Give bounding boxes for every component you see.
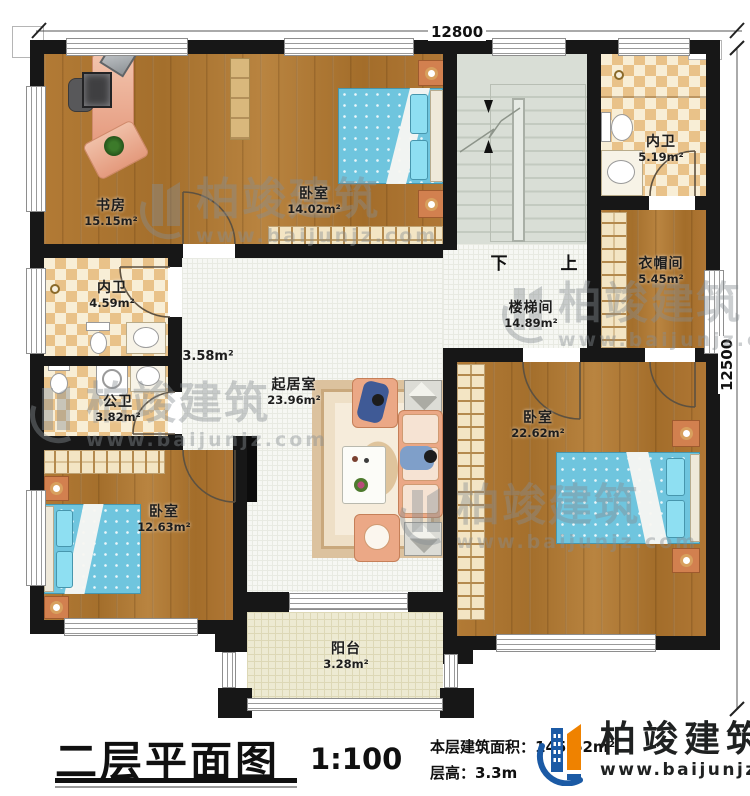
balcony-side-rail [222,652,236,688]
toilet-bowl [90,332,107,354]
brand-logo-icon [534,720,590,786]
room-label-bath-top: 内卫5.19m² [638,134,683,165]
table-decor [352,456,358,462]
balcony-pillar [440,688,474,718]
toilet-bowl [50,373,68,394]
title-underline-thin [55,786,297,788]
side-table [404,380,442,412]
tv [247,436,257,502]
window [284,38,414,56]
window [64,618,198,636]
computer-monitor [82,72,112,108]
lamp-icon [425,198,438,211]
armchair-pillow [364,524,390,550]
sofa-cushion [402,484,439,514]
wall-stub [215,634,247,652]
wall-stair-right [587,54,601,196]
wall-stair-left [443,54,457,250]
wall-balcony-stub [408,592,443,612]
coffee-table [342,446,386,504]
window [492,38,566,56]
sink-basin [133,327,159,348]
table-decor [364,458,369,463]
wall-balcony-stub [247,592,289,612]
room-label-bedroom-right: 卧室22.62m² [511,410,564,441]
person-head [372,394,384,406]
brand-name: 柏竣建筑 [600,720,750,760]
room-label-bedroom-top: 卧室14.02m² [287,186,340,217]
table-lamp-icon [409,382,437,410]
bed-right-pillow [666,458,685,496]
wall-cloakroom [587,210,601,362]
window [26,86,46,212]
wall-interior [601,348,645,362]
divider-cabinet [230,58,250,140]
towel-hook-icon [614,70,624,80]
stair-outline [490,84,586,242]
bed-top-pillow [410,94,428,134]
wall-bedroom-right [443,348,457,650]
toilet-tank [86,322,110,331]
window [496,634,656,652]
window [26,490,46,586]
sink-basin [136,366,160,386]
bed-right-headboard [690,454,700,542]
stair-down-label: 下 [491,249,508,274]
window [26,268,46,354]
wall-interior [587,196,649,210]
wall-interior [168,258,182,267]
bed-top-pillow [410,140,428,180]
toilet-tank [601,112,611,142]
flower-decor [354,478,368,492]
bed-top-headboard [430,90,443,182]
nightstand [44,596,69,619]
room-label-bath-public: 公卫3.82m² [95,394,140,425]
brand-website: www.baijunjz.com [600,760,750,780]
floor-plan-page: 12800 12500 柏竣建筑 www.baijunjz.com 柏竣建筑 w… [0,0,750,796]
side-table [404,522,442,556]
sofa-cushion [402,414,439,444]
wall-interior [695,196,706,210]
lamp-icon [50,601,63,614]
lamp-icon [680,427,693,440]
room-label-balcony: 阳台3.28m² [323,641,368,672]
stair-up-label: 上 [561,249,578,274]
wall-interior [235,244,443,258]
dimension-height: 12500 [718,336,736,394]
room-label-stairwell: 楼梯间14.89m² [504,300,557,331]
balcony-railing [247,698,443,711]
wardrobe-bedroom-right [457,364,485,620]
room-label-bedroom-left: 卧室12.63m² [137,504,190,535]
nightstand [418,190,444,218]
window [66,38,188,56]
wall-interior [168,317,182,392]
plan-scale: 1:100 [310,742,402,776]
lamp-icon [425,67,438,80]
nightstand [672,420,700,447]
toilet-bowl [611,114,633,141]
wall-bath-divider [30,356,168,366]
wall-interior [30,244,183,258]
room-label-living: 起居室23.96m² [267,377,320,408]
nightstand [44,476,69,501]
lamp-icon [50,482,63,495]
title-underline [55,778,297,783]
nightstand [672,548,700,573]
balcony-slider-window [289,593,408,610]
potted-plant [104,136,124,156]
shower-partition [601,96,706,98]
wardrobe-bedroom-left [44,450,165,474]
wall-interior [580,348,603,362]
room-label-study: 书房15.15m² [84,198,137,229]
room-label-cloakroom: 衣帽间5.45m² [638,256,683,287]
bed-left-pillow [56,551,73,588]
sink-basin [607,160,635,184]
room-label-hallway: 3.58m² [182,349,233,365]
lamp-icon [680,554,693,567]
stair-handrail [512,98,525,242]
cloakroom-rack [601,212,627,348]
table-lamp-icon [409,525,438,554]
towel-hook-icon [50,284,60,294]
person-head [424,450,437,463]
bed-left-pillow [56,510,73,547]
washer-drum-icon [102,369,122,389]
wall-interior [30,436,183,450]
balcony-side-rail [444,654,458,688]
room-label-bath-mid: 内卫4.59m² [89,280,134,311]
dimension-width: 12800 [428,23,486,41]
brand-logo: 柏竣建筑 www.baijunjz.com [534,720,750,786]
floor-height-text: 层高：3.3m [430,762,517,783]
bed-right-pillow [666,500,685,538]
window [618,38,690,56]
nightstand [418,60,444,86]
wall-bedroom-left [233,436,247,634]
